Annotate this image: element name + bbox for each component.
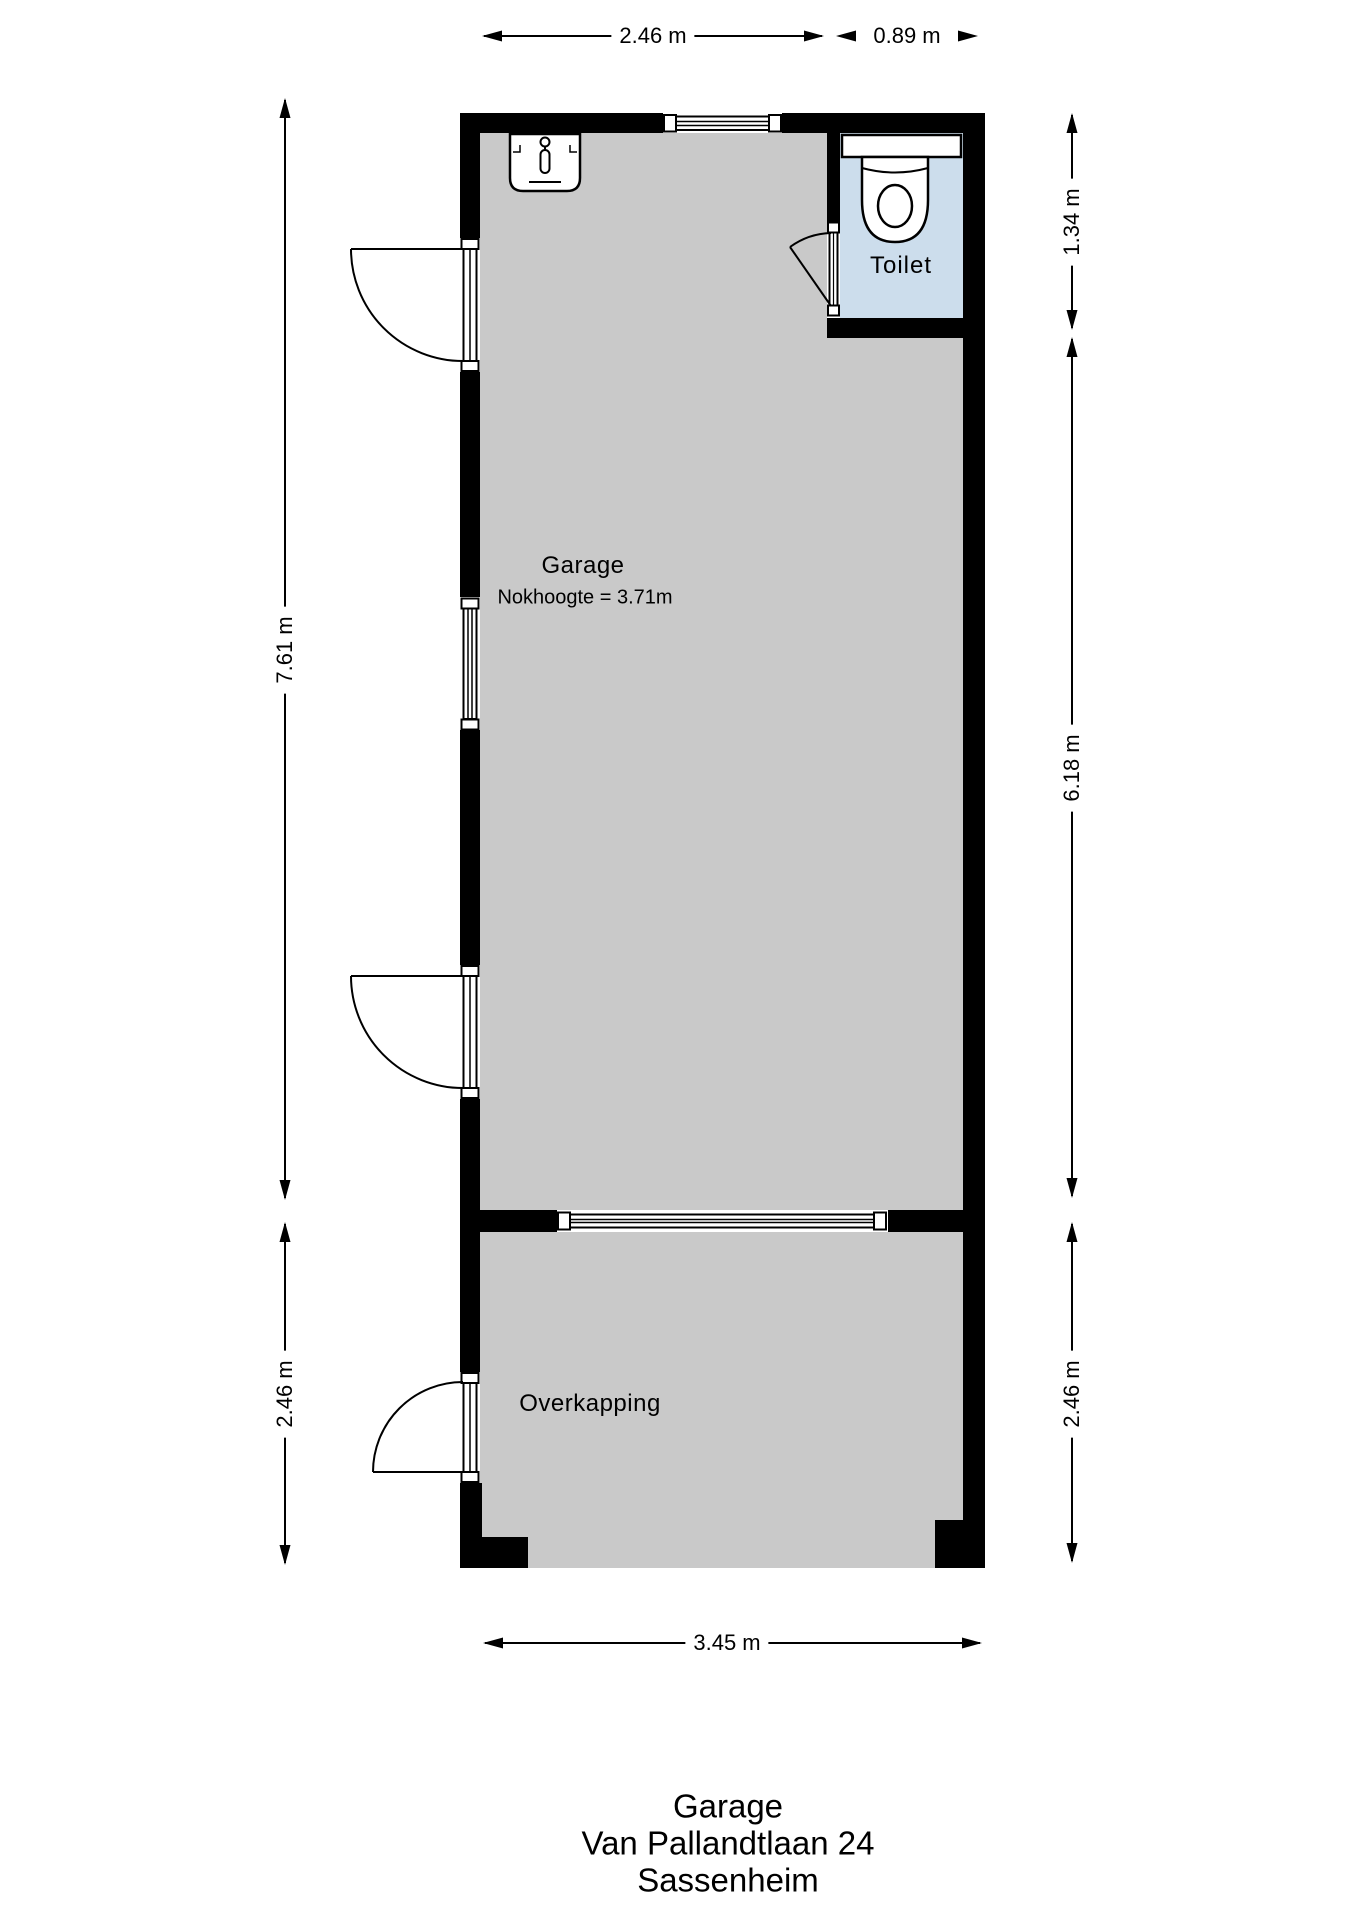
dim-arrow-down — [1067, 1178, 1078, 1198]
door1-jamb — [462, 239, 479, 249]
dim-arrow-up — [1067, 113, 1078, 133]
toilet-door-jamb — [828, 223, 839, 233]
door-left-top — [351, 238, 480, 372]
dim-arrow-up — [280, 1222, 291, 1242]
dim-label-right-overkapping: 2.46 m — [1059, 1350, 1085, 1437]
dim-arrow-up — [280, 98, 291, 118]
door2-jamb — [462, 966, 479, 976]
garage-room-label: Garage — [541, 552, 624, 580]
door-left-middle — [351, 965, 480, 1099]
dim-arrow-right — [962, 1638, 982, 1649]
dim-label-right-toilet: 1.34 m — [1059, 178, 1085, 265]
top-window-jamb — [664, 115, 676, 132]
left-corner-post-foot — [460, 1537, 528, 1568]
divider-wall-right-stub — [888, 1210, 963, 1232]
dim-arrow-up — [1067, 1222, 1078, 1242]
left-window-glazing — [464, 608, 477, 719]
toilet-bowl-inner — [878, 185, 912, 227]
toilet-room-label: Toilet — [870, 252, 932, 280]
door3-jamb — [462, 1472, 479, 1482]
door3-swing-arc — [373, 1382, 463, 1472]
toilet-partition-wall — [827, 133, 840, 222]
dim-label-right-garage: 6.18 m — [1059, 724, 1085, 811]
sink-faucet-body — [541, 150, 550, 173]
dim-label-bottom: 3.45 m — [685, 1630, 768, 1656]
left-wall-seg1 — [460, 113, 480, 238]
top-window — [663, 113, 782, 133]
title-line-1: Garage — [582, 1788, 875, 1825]
door-left-overkapping — [373, 1372, 480, 1483]
door2-swing-arc — [351, 976, 463, 1088]
left-window-jamb — [462, 599, 479, 609]
divider-window — [557, 1210, 888, 1232]
dim-label-top-toilet: 0.89 m — [865, 23, 948, 49]
left-wall-seg2 — [460, 372, 480, 597]
overkapping-room-label: Overkapping — [519, 1390, 661, 1418]
floors — [480, 133, 963, 1568]
dim-arrow-down — [280, 1180, 291, 1200]
left-window-jamb — [462, 720, 479, 730]
toilet-door-jamb — [828, 306, 839, 316]
garage-room-note: Nokhoogte = 3.71m — [497, 587, 672, 610]
title-block: Garage Van Pallandtlaan 24 Sassenheim — [582, 1788, 875, 1899]
sink-fixture — [510, 134, 580, 191]
left-wall-seg4 — [460, 1099, 480, 1372]
right-corner-post — [935, 1520, 985, 1568]
dim-arrow-down — [280, 1545, 291, 1565]
dim-arrow-up — [1067, 337, 1078, 357]
toilet-cistern — [842, 135, 961, 157]
toilet-bottom-wall — [827, 318, 985, 338]
dim-arrow-down — [1067, 1543, 1078, 1563]
divider-glazing — [570, 1215, 874, 1228]
divider-jamb — [874, 1213, 886, 1230]
dim-arrow-left — [482, 31, 502, 42]
dim-arrow-left — [483, 1638, 503, 1649]
dim-label-top-garage: 2.46 m — [611, 23, 694, 49]
dim-arrow-right — [804, 31, 824, 42]
door2-jamb — [462, 1088, 479, 1098]
title-line-2: Van Pallandtlaan 24 — [582, 1825, 875, 1862]
top-window-jamb — [769, 115, 781, 132]
divider-wall-left-stub — [480, 1210, 557, 1232]
door3-jamb — [462, 1373, 479, 1383]
left-wall-seg3 — [460, 730, 480, 965]
door1-swing-arc — [351, 249, 463, 361]
dim-label-left-garage: 7.61 m — [272, 606, 298, 693]
left-window — [460, 597, 480, 730]
top-wall-right — [782, 113, 985, 133]
divider-jamb — [558, 1213, 570, 1230]
floorplan-drawing — [0, 0, 1358, 1920]
dim-arrow-down — [1067, 310, 1078, 330]
title-line-3: Sassenheim — [582, 1862, 875, 1899]
top-wall-left — [460, 113, 663, 133]
dim-arrow-left — [836, 31, 856, 42]
dim-arrow-right — [958, 31, 978, 42]
sink-faucet-head — [541, 138, 550, 147]
floorplan-page: 2.46 m 0.89 m 7.61 m 2.46 m 1.34 m 6.18 … — [0, 0, 1358, 1920]
dim-label-left-overkapping: 2.46 m — [272, 1350, 298, 1437]
door1-jamb — [462, 361, 479, 371]
top-window-glazing — [676, 117, 769, 131]
